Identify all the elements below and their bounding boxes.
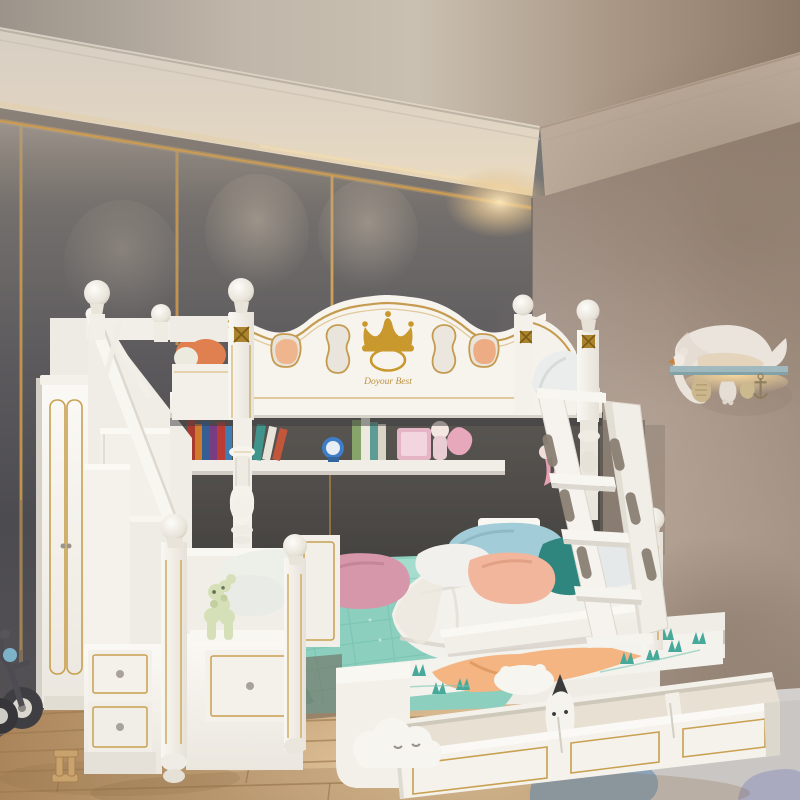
- svg-text:Doyour Best: Doyour Best: [363, 377, 412, 387]
